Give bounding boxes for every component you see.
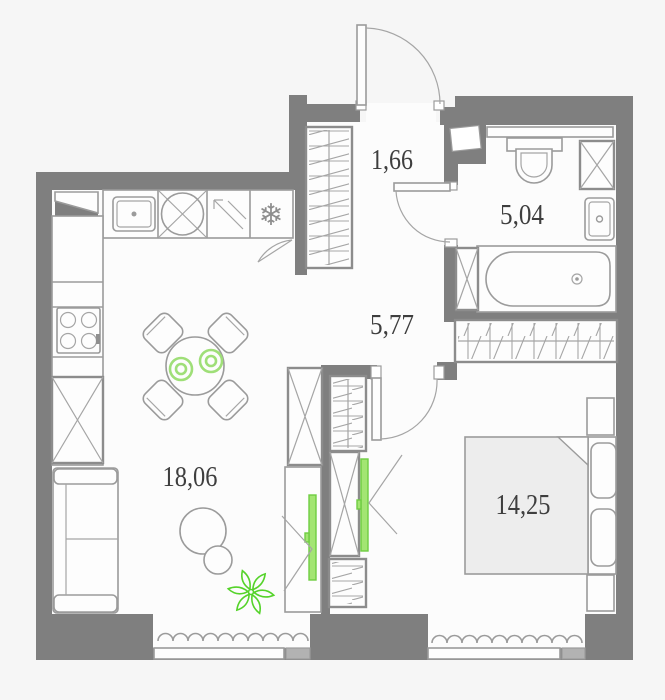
window-living (154, 648, 284, 659)
bedroom-closet (455, 320, 617, 362)
wall-top-entrance (289, 104, 360, 122)
door-jamb (434, 366, 444, 379)
washing-machine (580, 141, 614, 189)
room-label-bedroom: 14,25 (496, 489, 551, 521)
window-living-block (286, 648, 310, 659)
room-label-corridor: 5,77 (370, 309, 414, 341)
dining-table (166, 337, 224, 395)
bedroom-wardrobe-upper (330, 376, 366, 451)
washbasin (585, 198, 614, 240)
tv-bedroom (361, 459, 368, 551)
pillow (591, 443, 616, 498)
wall-bottom-pier (310, 614, 428, 660)
floor-plan: ❄ (0, 0, 665, 700)
bathroom-door-opening (444, 189, 458, 240)
living-window-niche (153, 614, 310, 648)
tv-mount (357, 500, 361, 509)
sofa-armrest (54, 469, 117, 484)
wall-right (616, 96, 633, 660)
room-label-entrance-hall: 1,66 (371, 144, 413, 176)
door-jamb (434, 101, 444, 110)
living-wardrobe-x (288, 368, 322, 465)
stove (57, 308, 100, 353)
kitchen-sink (113, 197, 155, 231)
tv-mount (305, 533, 309, 542)
bedroom-cabinet-x (330, 452, 359, 556)
bathroom-shelf (487, 127, 613, 137)
bedroom-door-leaf (372, 378, 381, 440)
sofa-armrest (54, 595, 117, 612)
entrance-opening (366, 103, 436, 123)
tv-living (309, 495, 316, 580)
bathtub (477, 246, 616, 312)
entrance-door-leaf (357, 25, 366, 105)
sofa (53, 468, 118, 613)
bathroom-door-leaf (394, 183, 450, 191)
base-cabinet-x (52, 377, 103, 463)
snowflake-icon: ❄ (258, 198, 283, 233)
pouf-small (204, 546, 232, 574)
wall-top-kitchen (36, 172, 307, 190)
nightstand-bottom (587, 575, 614, 611)
bedroom-wardrobe-lower (329, 559, 366, 607)
bedroom-door-opening (380, 365, 436, 380)
wall-bottom-left (36, 614, 153, 660)
shaft-box (450, 125, 481, 151)
bathtub-end-cabinet (456, 248, 478, 310)
window-bedroom-block (562, 648, 585, 659)
entrance-door-swing (366, 28, 440, 104)
wall-left (36, 172, 52, 660)
room-label-bathroom: 5,04 (500, 199, 544, 231)
wall-top-bathroom (455, 96, 633, 125)
door-jamb (445, 239, 457, 247)
window-bedroom (428, 648, 560, 659)
floor-plan-canvas: ❄ (0, 0, 665, 700)
room-label-kitchen-living: 18,06 (163, 461, 218, 493)
hall-wardrobe (306, 127, 352, 268)
nightstand-top (587, 398, 614, 435)
entrance-door (356, 25, 444, 110)
pillow (591, 509, 616, 566)
wall-bottom-right (585, 614, 633, 660)
door-jamb (371, 366, 381, 379)
